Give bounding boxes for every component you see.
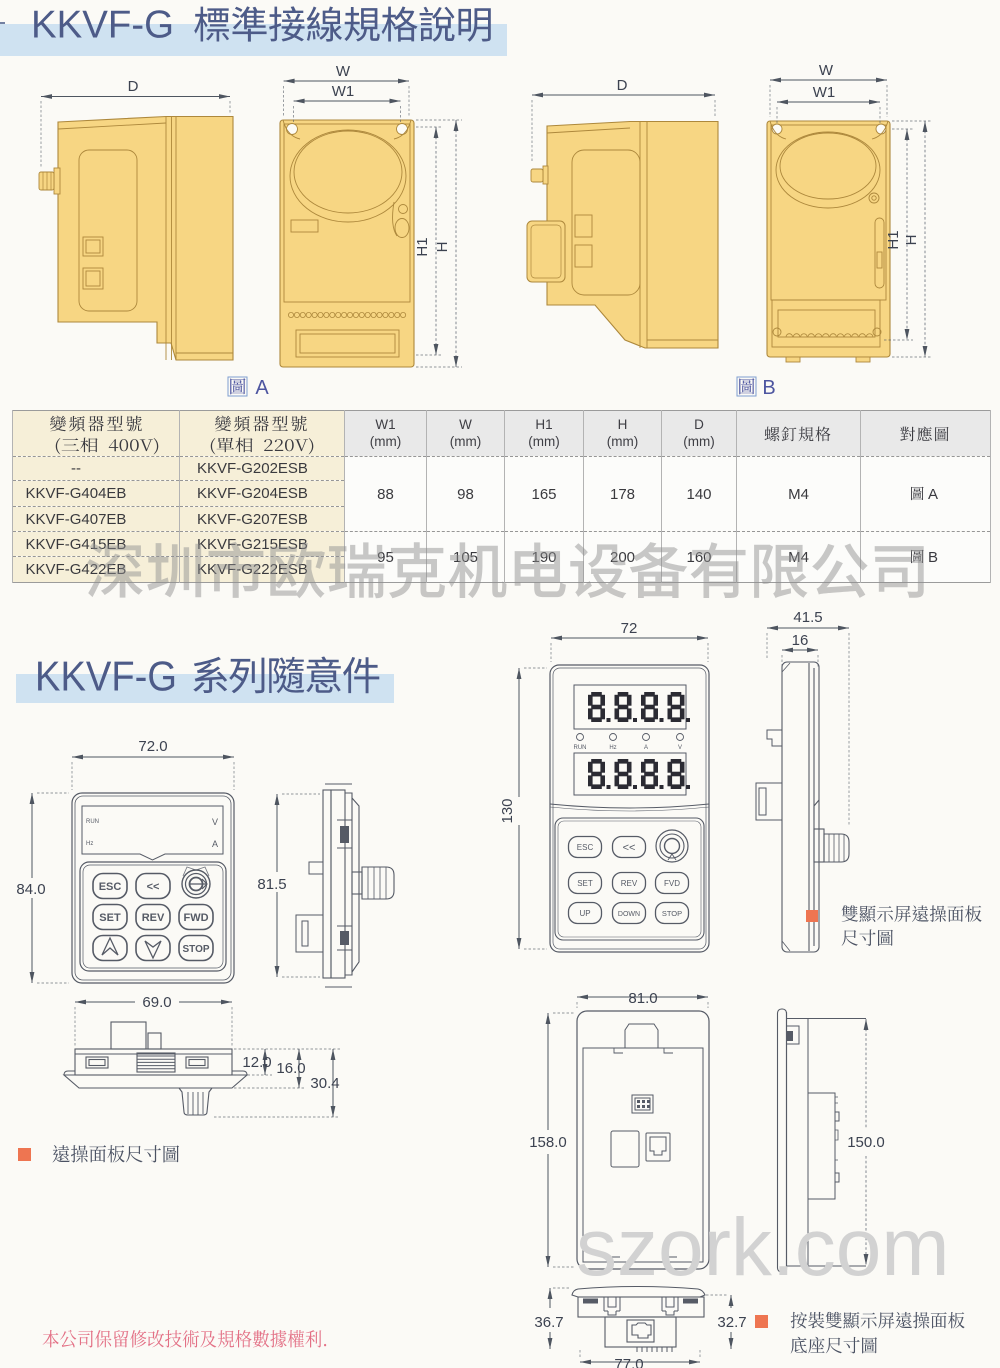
svg-text:B: B (762, 377, 775, 399)
svg-text:H1: H1 (885, 230, 902, 249)
svg-text:69.0: 69.0 (142, 994, 171, 1011)
svg-text:Hz: Hz (609, 745, 616, 751)
svg-text:<<: << (623, 842, 636, 854)
svg-text:36.7: 36.7 (534, 1314, 563, 1331)
svg-text:UP: UP (579, 909, 590, 918)
svg-text:72: 72 (621, 620, 638, 637)
svg-text:H: H (903, 235, 920, 246)
svg-text:41.5: 41.5 (793, 609, 822, 626)
svg-text:W: W (819, 62, 834, 79)
svg-text:16: 16 (792, 632, 809, 649)
svg-text:szork.com: szork.com (576, 1202, 950, 1293)
svg-text:DOWN: DOWN (618, 911, 640, 918)
svg-text:A: A (255, 377, 269, 399)
svg-text:REV: REV (621, 879, 638, 888)
svg-text:77.0: 77.0 (614, 1356, 643, 1368)
svg-text:84.0: 84.0 (16, 881, 45, 898)
svg-text:150.0: 150.0 (847, 1134, 885, 1151)
svg-text:<<: << (147, 881, 160, 893)
svg-text:81.0: 81.0 (628, 990, 657, 1007)
svg-text:Hz: Hz (86, 841, 93, 847)
svg-text:W1: W1 (813, 84, 836, 101)
svg-text:12.0: 12.0 (242, 1054, 271, 1071)
svg-text:ESC: ESC (577, 843, 594, 852)
svg-text:158.0: 158.0 (529, 1134, 567, 1151)
svg-text:W: W (336, 63, 351, 80)
svg-text:H: H (434, 242, 451, 253)
svg-text:A: A (928, 486, 938, 503)
svg-text:STOP: STOP (662, 909, 682, 918)
svg-text:81.5: 81.5 (257, 876, 286, 893)
svg-text:FWD: FWD (183, 912, 208, 924)
svg-text:16.0: 16.0 (276, 1060, 305, 1077)
svg-text:REV: REV (142, 912, 165, 924)
svg-text:D: D (128, 78, 139, 95)
svg-text:V: V (212, 817, 218, 827)
svg-text:SET: SET (577, 879, 593, 888)
svg-text:A: A (212, 839, 218, 849)
svg-text:RUN: RUN (574, 745, 587, 751)
svg-text:D: D (617, 77, 628, 94)
svg-text:B: B (928, 549, 938, 566)
svg-text:V: V (678, 745, 682, 751)
svg-text:W1: W1 (332, 83, 355, 100)
svg-text:A: A (644, 745, 648, 751)
svg-text:RUN: RUN (86, 819, 99, 825)
svg-text:72.0: 72.0 (138, 738, 167, 755)
svg-text:30.4: 30.4 (310, 1075, 339, 1092)
svg-text:FVD: FVD (664, 879, 680, 888)
svg-text:H1: H1 (414, 237, 431, 256)
svg-text:130: 130 (499, 798, 516, 823)
svg-text:SET: SET (99, 912, 121, 924)
svg-text:STOP: STOP (182, 944, 209, 955)
svg-text:ESC: ESC (99, 881, 122, 893)
svg-text:32.7: 32.7 (717, 1314, 746, 1331)
